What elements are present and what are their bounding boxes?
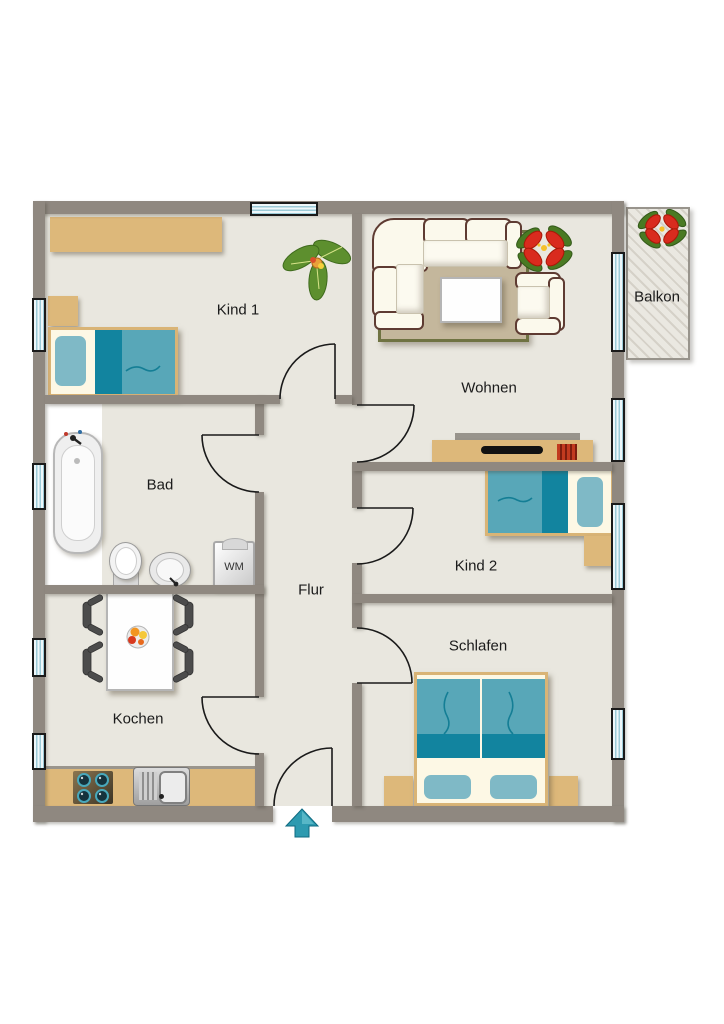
wall-left [33, 201, 45, 822]
tv-sideboard [432, 440, 593, 462]
bed-center-divider [480, 675, 482, 803]
blanket-kind2 [488, 471, 542, 533]
toilet-lid [115, 547, 137, 575]
toilet-bowl [109, 542, 142, 580]
wall-segment [352, 683, 362, 806]
room-label-bad: Bad [147, 477, 174, 494]
sofa-seat [396, 264, 424, 314]
wall-segment [352, 214, 362, 405]
bed-band-kind2 [542, 471, 568, 533]
wall-bad-kochen [45, 585, 264, 594]
window-kochen-left-1 [32, 638, 46, 677]
wall-segment [255, 492, 264, 697]
tv-screen [481, 446, 543, 454]
bathroom-sink [149, 552, 191, 588]
room-label-kind1: Kind 1 [217, 302, 260, 319]
kitchen-sink-unit [133, 767, 190, 806]
sofa-seat [423, 240, 508, 267]
floorplan-page: WM [0, 0, 724, 1024]
drainboard [139, 772, 157, 800]
sink-basin [159, 771, 187, 804]
balcony-door-window [611, 252, 625, 352]
sink-bowl [156, 558, 184, 582]
bed-kind2 [485, 468, 614, 536]
faucet-icon [159, 794, 164, 799]
pillow-kind1 [55, 336, 86, 386]
pillow-schlafen-left [424, 775, 471, 799]
pillow-schlafen-right [490, 775, 537, 799]
wardrobe-kind1 [50, 217, 222, 252]
nightstand-kind1 [48, 296, 78, 326]
bathtub [53, 432, 103, 554]
nightstand-schlafen-right [549, 776, 578, 806]
window-kind1-top [250, 202, 318, 216]
window-kind1-left [32, 298, 46, 352]
double-bed-schlafen [414, 672, 548, 806]
room-label-wohnen: Wohnen [461, 380, 517, 397]
wall-bottom-left [33, 806, 273, 822]
nightstand-schlafen-left [384, 776, 413, 806]
window-bad-left [32, 463, 46, 510]
wall-bottom-right [332, 806, 624, 822]
stove [73, 771, 113, 804]
window-kochen-left-2 [32, 733, 46, 770]
bed-band-kind1 [95, 330, 122, 394]
books [557, 444, 577, 460]
armchair-arm-bottom [515, 317, 561, 335]
wall-kind1-bottom-stub [335, 395, 352, 404]
wall-wohnen-kind2 [352, 462, 612, 471]
room-label-flur: Flur [298, 582, 324, 599]
armchair-seat [517, 286, 550, 319]
dining-table [106, 592, 174, 691]
coffee-table [440, 277, 502, 323]
window-kind2-right [611, 503, 625, 590]
window-schlafen-right [611, 708, 625, 760]
washing-machine-label: WM [224, 561, 244, 573]
washing-machine-lid [222, 538, 248, 550]
bathtub-drain [74, 458, 80, 464]
room-label-schlafen: Schlafen [449, 638, 507, 655]
nightstand-kind2 [584, 536, 614, 566]
wall-segment [255, 753, 264, 806]
window-wohnen-right [611, 398, 625, 462]
wall-kind1-bottom [45, 395, 280, 404]
pillow-kind2 [577, 477, 603, 527]
wall-kind2-schlafen [352, 594, 612, 603]
bed-kind1 [48, 327, 178, 397]
room-label-kochen: Kochen [113, 711, 164, 728]
blanket-kind1 [122, 330, 175, 394]
wall-top [33, 201, 624, 214]
washing-machine: WM [213, 541, 255, 589]
entrance-threshold [273, 806, 332, 822]
room-label-balkon: Balkon [634, 289, 680, 306]
room-label-kind2: Kind 2 [455, 558, 498, 575]
balcony [626, 207, 690, 360]
